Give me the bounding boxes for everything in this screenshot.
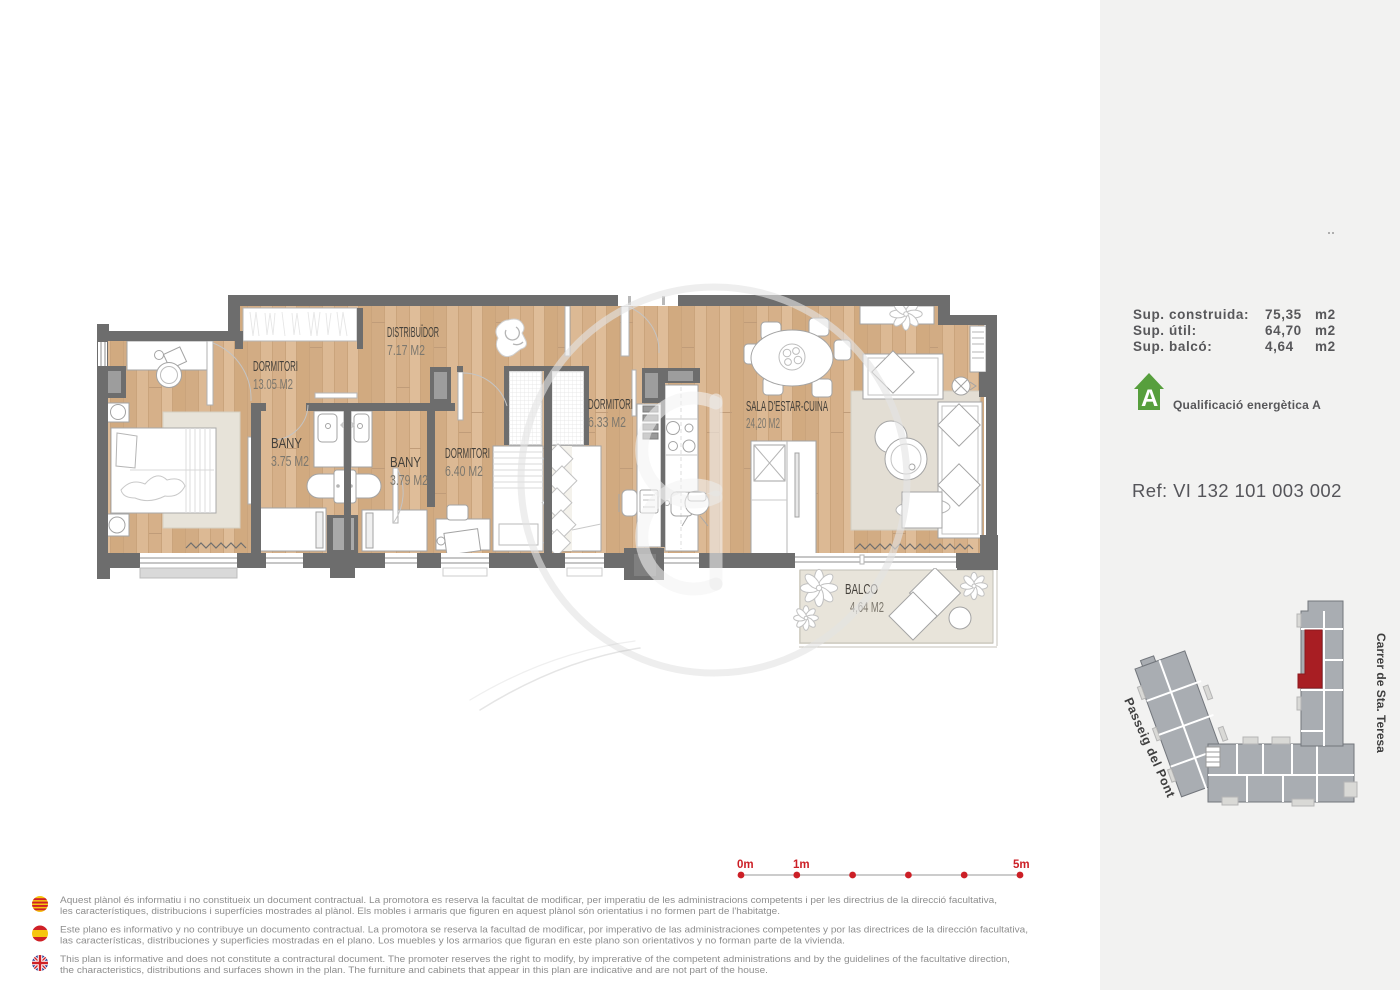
svg-text:6.33 M2: 6.33 M2 <box>588 415 626 431</box>
svg-text:6.40 M2: 6.40 M2 <box>445 464 483 480</box>
svg-text:64,70: 64,70 <box>1265 323 1302 338</box>
svg-text:m2: m2 <box>1315 339 1336 354</box>
svg-text:DORMITORI: DORMITORI <box>253 359 298 375</box>
svg-text:Ref: VI 132 101 003 002: Ref: VI 132 101 003 002 <box>1132 480 1342 501</box>
svg-text:7.17 M2: 7.17 M2 <box>387 343 425 359</box>
svg-text:Sup. útil:: Sup. útil: <box>1133 323 1197 338</box>
svg-text:DORMITORI: DORMITORI <box>445 446 490 462</box>
svg-text:24,20 M2: 24,20 M2 <box>746 416 780 432</box>
svg-text:Sup. construida:: Sup. construida: <box>1133 307 1249 322</box>
svg-text:13.05 M2: 13.05 M2 <box>253 377 293 393</box>
svg-text:the characteristics, distribut: the characteristics, distributions and s… <box>60 965 768 975</box>
svg-text:Carrer de Sta. Teresa: Carrer de Sta. Teresa <box>1374 633 1388 753</box>
svg-text:BANY: BANY <box>271 436 302 452</box>
svg-text:m2: m2 <box>1315 307 1336 322</box>
svg-text:BANY: BANY <box>390 455 421 471</box>
svg-text:Sup. balcó:: Sup. balcó: <box>1133 339 1212 354</box>
svg-text:SALA D'ESTAR-CUINA: SALA D'ESTAR-CUINA <box>746 399 828 415</box>
svg-text:75,35: 75,35 <box>1265 307 1302 322</box>
svg-text:A: A <box>1141 385 1158 412</box>
svg-text:4,64: 4,64 <box>1265 339 1294 354</box>
svg-text:5m: 5m <box>1013 859 1030 871</box>
svg-text:DISTRIBUÏDOR: DISTRIBUÏDOR <box>387 324 439 341</box>
svg-text:Este plano es informativo y no: Este plano es informativo y no contribuy… <box>60 925 1028 935</box>
svg-text:Aquest plànol és informatiu i: Aquest plànol és informatiu i no constit… <box>60 895 997 905</box>
svg-text:3.79 M2: 3.79 M2 <box>390 473 428 489</box>
svg-text:las características, distribuc: las características, distribuciones y su… <box>60 936 845 946</box>
svg-text:DORMITORI: DORMITORI <box>588 397 633 413</box>
svg-text:les característiques, distribu: les característiques, distribucions i su… <box>60 906 780 916</box>
svg-text:Qualificació energètica A: Qualificació energètica A <box>1173 398 1321 412</box>
svg-text:This plan is informative and d: This plan is informative and does not co… <box>60 954 1010 964</box>
svg-text:0m: 0m <box>737 859 754 871</box>
svg-text:3.75 M2: 3.75 M2 <box>271 454 309 470</box>
svg-text:1m: 1m <box>793 859 810 871</box>
svg-text:m2: m2 <box>1315 323 1336 338</box>
